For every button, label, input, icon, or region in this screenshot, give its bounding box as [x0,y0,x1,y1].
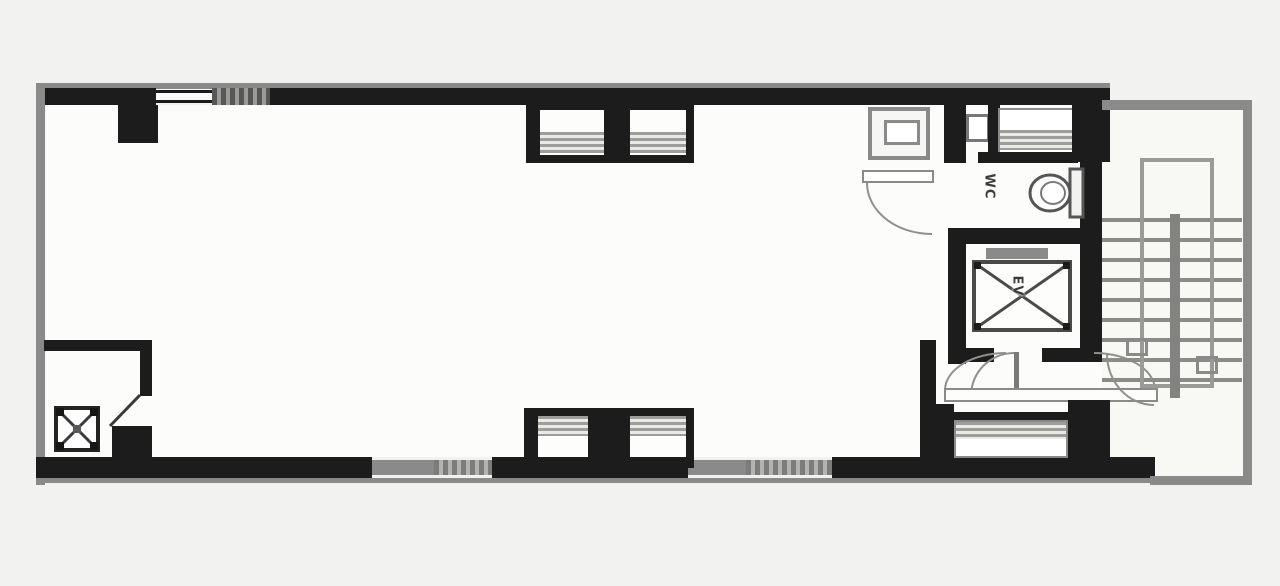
ev-label-text: EV [1011,276,1024,294]
utility-room-right-wall [140,340,152,396]
stair-newel-post-right [1196,356,1218,374]
column-top-left [118,105,158,143]
left-wall [36,88,45,485]
stairwell-right-wall [1243,100,1252,485]
stairwell-top-wall [1102,100,1252,110]
top-window-bay-hatch-right [630,132,686,153]
bottom-wall-shadow-line [36,478,1156,483]
entry-block-right [1068,400,1110,457]
bottom-wall-left [36,457,372,478]
top-wall-louver [212,88,270,105]
utility-room-top-wall [44,340,152,351]
wc-label-text: WC [983,174,996,192]
bottom-window-bay-hatch-right [630,416,686,436]
entry-block-left [920,404,954,457]
bottom-wall-right [832,457,1155,478]
core-wall-a [944,105,966,163]
pipe-shaft-box [54,406,100,452]
wc-door-leaf [862,170,934,183]
bottom-wall-window-4 [746,460,832,475]
toilet [1026,164,1086,222]
column-bottom-left [112,426,152,462]
wc-ev-divider-wall [948,228,1100,244]
ev-label: EV [1008,278,1026,314]
top-wall-left [36,88,156,105]
core-top-window-hatch [1000,130,1072,150]
top-window-bay-hatch-left [540,132,604,153]
bottom-wall-window-1 [372,460,434,475]
top-wall-window [156,90,212,103]
ev-bottom-wall-right [1042,348,1100,362]
entry-window-hatch [956,422,1066,439]
stair-stringer [1170,214,1180,398]
ev-counterweight [986,248,1048,259]
small-duct-shaft [966,114,990,142]
hall-wall-stub [920,340,936,404]
wc-sill-wall [978,152,1078,163]
bottom-window-bay-hatch-left [538,416,588,436]
entry-window-head [950,412,1070,420]
utility-room-door-leaf [106,394,142,428]
bottom-wall-window-2 [434,460,492,475]
floor-plan: WC EV [0,0,1280,586]
wc-label: WC [980,176,998,212]
stairwell-bottom-wall [1150,476,1252,485]
ev-left-wall [948,244,966,364]
bottom-wall-window-3 [688,460,746,475]
kitchenette-sink-basin [884,120,920,145]
